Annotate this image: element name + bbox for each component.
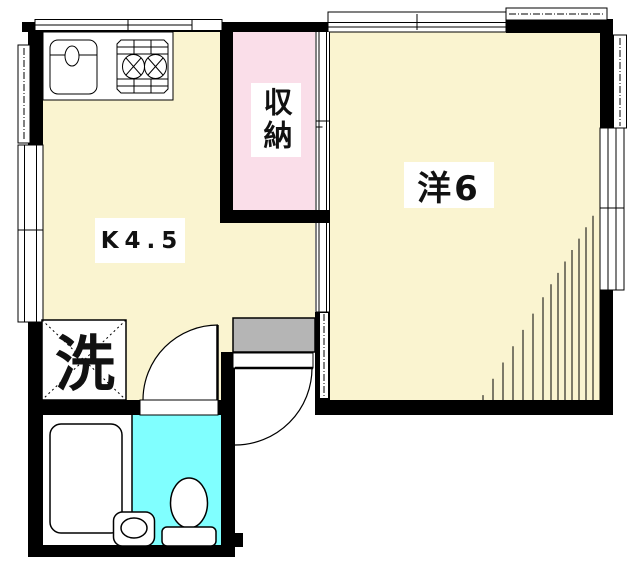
floor-plan: K4.5 洋6 収納 洗 [0,0,641,566]
wall-bottom-western [315,400,613,415]
floor-plan-drawing [0,0,641,566]
laundry-label: 洗 [46,320,124,398]
kitchen-window [35,20,222,31]
bathroom-door-opening [140,400,218,415]
sink [50,40,97,94]
wall-storage-bottom [220,210,330,223]
wall-bath-bottom [28,545,235,557]
storage-label: 収納 [251,83,301,157]
wall-right-upper [600,22,613,128]
wall-right-lower [600,290,613,415]
entrance-wall-channel [320,313,328,398]
toilet-bowl [171,478,208,528]
wall-left-lower [28,322,43,557]
wall-top-right [506,19,613,33]
bathtub [50,424,122,533]
left-lower-window [18,145,43,322]
entrance-step [233,318,315,352]
entrance [233,318,315,445]
wall-entrance-left [221,352,235,553]
toilet-tank [162,527,216,546]
western-top-window [328,12,506,32]
left-upper-window [18,45,30,143]
western-room-floor [330,32,600,400]
wash-basin-bowl [121,518,147,538]
sliding-partition [316,32,330,312]
wall-entrance-foot [235,533,243,547]
wall-storage-left [220,22,233,223]
top-right-bay-window [506,8,607,20]
stove [117,40,168,93]
right-outer-strip [614,35,627,128]
kitchen-counter [43,32,173,100]
wall-bath-top-right [218,400,235,415]
kitchen-floor-sliver [221,320,233,352]
entrance-door-arc [235,368,312,445]
kitchen-label: K4.5 [95,218,185,263]
western-room-label: 洋6 [404,162,494,208]
entrance-door-frame [233,353,313,368]
right-window [600,128,624,290]
